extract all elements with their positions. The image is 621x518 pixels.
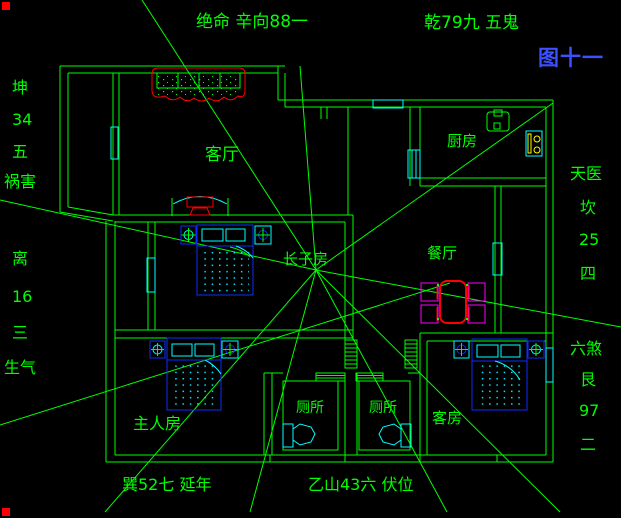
annotation-right-1: 天医	[570, 166, 602, 182]
annotation-top-right: 乾79九 五鬼	[424, 15, 519, 32]
toilet-right	[379, 424, 411, 447]
nightstand-lamp	[222, 341, 238, 358]
room-label-living-room: 客厅	[205, 147, 239, 164]
bed-master	[167, 338, 221, 410]
annotation-bottom-right: 乙山43六 伏位	[308, 477, 413, 493]
annotation-left-7: 三	[12, 325, 28, 341]
annotation-right-3: 25	[579, 232, 599, 248]
annotation-left-1: 坤	[12, 80, 28, 96]
bed-guest	[472, 339, 527, 410]
annotation-left-4: 祸害	[4, 174, 36, 190]
corner-marker-top-left	[2, 2, 10, 10]
annotation-left-8: 生气	[4, 360, 36, 376]
nightstand-lamp	[528, 341, 544, 358]
nightstand-lamp	[255, 226, 271, 244]
sofa	[152, 68, 245, 101]
toilet-left	[283, 424, 315, 447]
nightstand-lamp	[150, 341, 165, 358]
stove	[526, 131, 542, 156]
annotation-left-5: 离	[12, 251, 28, 267]
tv-cabinet	[172, 197, 228, 217]
annotation-right-6: 艮	[580, 372, 596, 388]
room-label-toilet-left: 厕所	[296, 401, 324, 415]
annotation-right-8: 二	[580, 437, 596, 453]
annotation-right-2: 坎	[580, 200, 596, 216]
nightstand-lamp	[181, 226, 196, 244]
room-label-kitchen: 厨房	[447, 134, 477, 149]
annotation-right-4: 四	[580, 266, 596, 282]
room-label-eldest-son-room: 长子房	[283, 252, 328, 267]
annotation-right-5: 六煞	[570, 341, 602, 357]
annotation-left-2: 34	[12, 112, 32, 128]
annotation-top-left: 绝命 辛向88一	[196, 14, 308, 31]
room-label-master-bedroom: 主人房	[133, 416, 181, 432]
window-living-left	[111, 127, 118, 159]
room-label-toilet-right: 厕所	[369, 401, 397, 415]
annotation-left-6: 16	[12, 289, 32, 305]
room-label-guest-room: 客房	[432, 411, 462, 426]
kitchen-sink	[487, 110, 509, 131]
nightstand-lamp	[454, 341, 469, 358]
annotation-left-3: 五	[12, 144, 28, 160]
windows	[111, 100, 553, 382]
floorplan-canvas: 绝命 辛向88一 乾79九 五鬼 图十一 坤 34 五 祸害 离 16 三 生气…	[0, 0, 621, 518]
corner-marker-bottom-left	[2, 508, 10, 516]
room-label-dining-room: 餐厅	[427, 246, 457, 261]
dining-table-set	[421, 281, 485, 323]
window-guest-right	[546, 348, 553, 382]
figure-caption: 图十一	[538, 48, 604, 69]
annotation-bottom-left: 巽52七 延年	[122, 477, 211, 493]
bed-eldest-son	[197, 225, 253, 295]
annotation-right-7: 97	[579, 403, 599, 419]
